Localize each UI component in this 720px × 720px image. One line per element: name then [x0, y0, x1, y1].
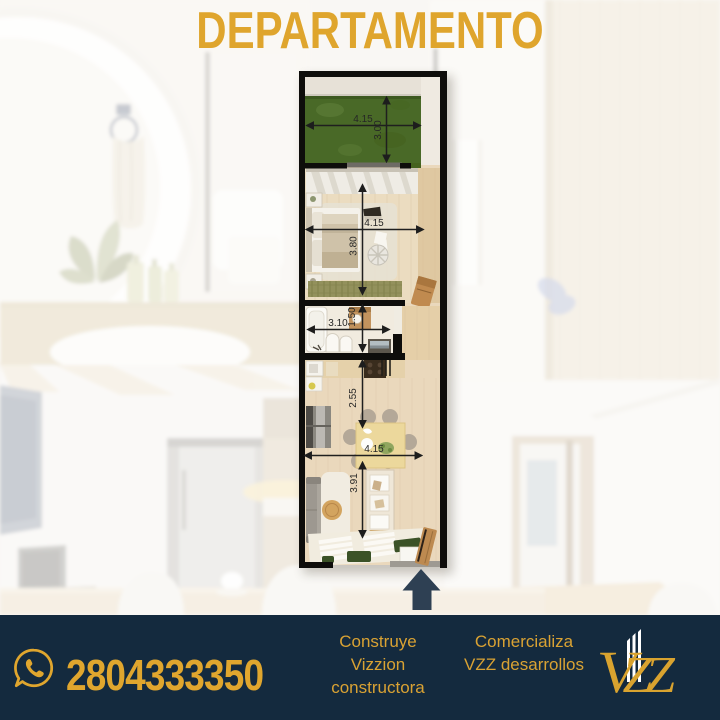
svg-text:3.91: 3.91	[349, 473, 360, 493]
svg-text:4.15: 4.15	[364, 444, 384, 455]
svg-text:3.00: 3.00	[373, 120, 384, 140]
svg-text:3.10: 3.10	[328, 318, 348, 329]
svg-text:2.55: 2.55	[348, 388, 359, 408]
svg-text:Z: Z	[642, 646, 681, 700]
svg-text:4.15: 4.15	[364, 218, 384, 229]
svg-text:3.80: 3.80	[349, 236, 360, 256]
svg-text:4.15: 4.15	[353, 114, 373, 125]
svg-text:1.50: 1.50	[347, 307, 358, 327]
